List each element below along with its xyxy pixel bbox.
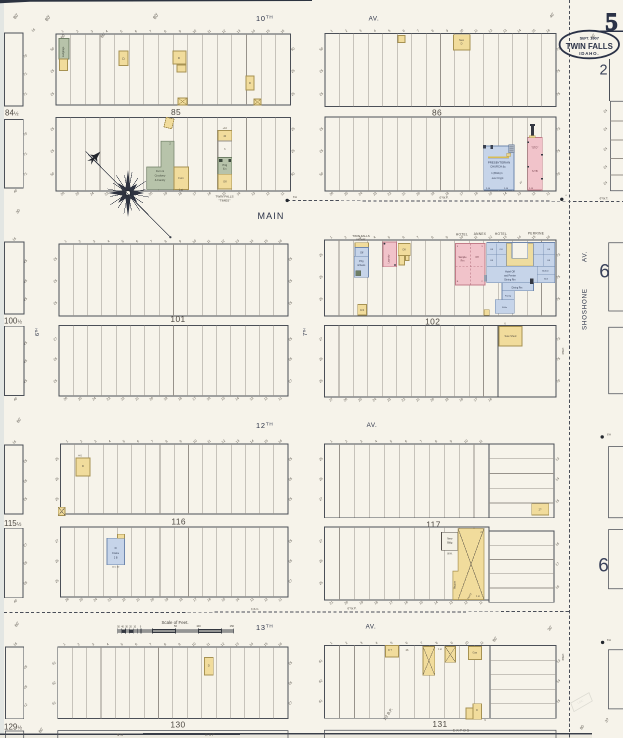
svg-text:AV.: AV. xyxy=(582,251,589,262)
svg-text:Off: Off xyxy=(547,260,550,262)
svg-text:+10: +10 xyxy=(223,127,228,130)
svg-text:D ?: D ? xyxy=(388,649,393,652)
svg-text:Barber: Barber xyxy=(542,270,549,273)
svg-text:and Perrine: and Perrine xyxy=(504,275,517,278)
svg-text:6'H: 6'H xyxy=(293,195,297,199)
svg-text:Crockery: Crockery xyxy=(155,174,166,178)
svg-text:Hotel Off: Hotel Off xyxy=(505,271,515,274)
svg-text:IDAHO.: IDAHO. xyxy=(579,51,599,56)
svg-text:Bldg: Bldg xyxy=(447,540,453,544)
svg-text:6'H: 6'H xyxy=(607,432,611,436)
svg-text:Crib: Crib xyxy=(360,309,365,312)
svg-text:AV.: AV. xyxy=(367,422,378,429)
svg-text:Off: Off xyxy=(475,256,478,259)
svg-text:ANNEX: ANNEX xyxy=(474,232,487,236)
svg-text:NEWS: NEWS xyxy=(357,237,366,241)
svg-text:6: 6 xyxy=(598,556,609,577)
svg-text:Off: Off xyxy=(547,249,550,251)
svg-text:E X P: E X P xyxy=(205,733,215,737)
svg-text:2 B: 2 B xyxy=(114,557,118,560)
svg-text:1 (Brick) 1: 1 (Brick) 1 xyxy=(491,172,503,175)
svg-text:2: 2 xyxy=(599,63,607,79)
svg-text:6"W.T.: 6"W.T. xyxy=(599,196,608,200)
svg-text:116: 116 xyxy=(171,517,186,527)
svg-text:1 st: 1 st xyxy=(179,189,183,192)
svg-text:Off: Off xyxy=(490,260,493,262)
svg-text:MAIN: MAIN xyxy=(258,211,285,221)
svg-text:AV.: AV. xyxy=(369,16,380,23)
svg-text:Off: Off xyxy=(360,252,363,255)
svg-text:1 st: 1 st xyxy=(438,648,442,651)
svg-text:4'W.P.: 4'W.P. xyxy=(561,347,565,355)
svg-text:117: 117 xyxy=(426,520,441,530)
svg-text:1 st: 1 st xyxy=(476,595,480,598)
svg-text:over Crypt: over Crypt xyxy=(492,177,504,180)
svg-text:"TIMES": "TIMES" xyxy=(219,199,231,203)
svg-text:Prtg: Prtg xyxy=(359,260,364,263)
svg-text:Wagons: Wagons xyxy=(455,580,457,589)
svg-text:Prtg: Prtg xyxy=(223,164,228,167)
svg-text:E X P O S: E X P O S xyxy=(453,729,470,733)
svg-text:CHURCH &c: CHURCH &c xyxy=(490,165,506,169)
svg-text:Lodgings: Lodgings xyxy=(61,46,65,57)
svg-text:101: 101 xyxy=(170,314,185,324)
svg-text:New: New xyxy=(447,537,452,541)
svg-text:HOTEL: HOTEL xyxy=(456,233,468,237)
svg-text:D: D xyxy=(461,43,463,46)
svg-text:Sample: Sample xyxy=(458,256,467,259)
svg-text:SHOSHONE: SHOSHONE xyxy=(582,288,589,330)
svg-text:Furn: Furn xyxy=(178,176,184,180)
svg-text:Off: Off xyxy=(223,180,227,184)
svg-text:New: New xyxy=(459,39,464,42)
svg-text:85: 85 xyxy=(171,107,181,117)
svg-text:4'W.P.: 4'W.P. xyxy=(561,653,565,661)
svg-text:Laundry: Laundry xyxy=(387,254,390,263)
svg-text:B.Ho: B.Ho xyxy=(502,307,508,309)
svg-text:Dining Rm: Dining Rm xyxy=(512,287,523,289)
svg-text:D: D xyxy=(115,546,117,550)
svg-text:& News: & News xyxy=(357,265,366,267)
svg-text:86: 86 xyxy=(432,108,442,118)
svg-text:Off: Off xyxy=(402,249,406,252)
svg-text:HOTEL: HOTEL xyxy=(495,232,507,236)
svg-text:S.T.B: S.T.B xyxy=(532,170,538,173)
svg-text:D: D xyxy=(208,664,210,668)
svg-text:Gas: Gas xyxy=(473,652,478,655)
svg-text:Frame: Frame xyxy=(112,552,120,555)
svg-text:150: 150 xyxy=(230,624,235,628)
svg-text:6'H: 6'H xyxy=(607,638,611,642)
svg-text:100: 100 xyxy=(196,624,201,628)
svg-text:C.B.C.: C.B.C. xyxy=(251,607,260,611)
svg-text:& Family: & Family xyxy=(155,178,166,182)
svg-text:5: 5 xyxy=(605,9,618,36)
svg-text:131: 131 xyxy=(432,719,447,729)
svg-text:D: D xyxy=(476,709,478,712)
svg-text:40 x 60: 40 x 60 xyxy=(112,567,120,569)
svg-text:AV.: AV. xyxy=(366,624,377,631)
svg-text:Pantry: Pantry xyxy=(505,295,512,298)
svg-text:6"W.P.: 6"W.P. xyxy=(347,606,356,610)
svg-text:Saw Shed: Saw Shed xyxy=(504,334,516,338)
svg-text:130: 130 xyxy=(170,720,185,730)
svg-text:Rm: Rm xyxy=(461,260,465,263)
svg-text:Dining Rm: Dining Rm xyxy=(504,279,515,282)
svg-text:TWIN FALLS: TWIN FALLS xyxy=(566,42,614,51)
svg-text:Boil: Boil xyxy=(544,279,548,281)
svg-text:"STO": "STO" xyxy=(531,147,538,150)
svg-text:SEPT. 1907: SEPT. 1907 xyxy=(580,35,600,40)
svg-text:Off: Off xyxy=(500,249,503,251)
svg-text:102: 102 xyxy=(425,317,440,327)
svg-text:Furn &: Furn & xyxy=(156,169,164,173)
svg-text:PRESBYTERIAN: PRESBYTERIAN xyxy=(488,160,510,164)
svg-text:Off: Off xyxy=(490,249,493,251)
svg-text:N O: N O xyxy=(117,733,124,737)
svg-text:PERRINE: PERRINE xyxy=(528,231,544,235)
svg-text:W.H.: W.H. xyxy=(447,553,453,556)
svg-text:6: 6 xyxy=(599,262,610,283)
